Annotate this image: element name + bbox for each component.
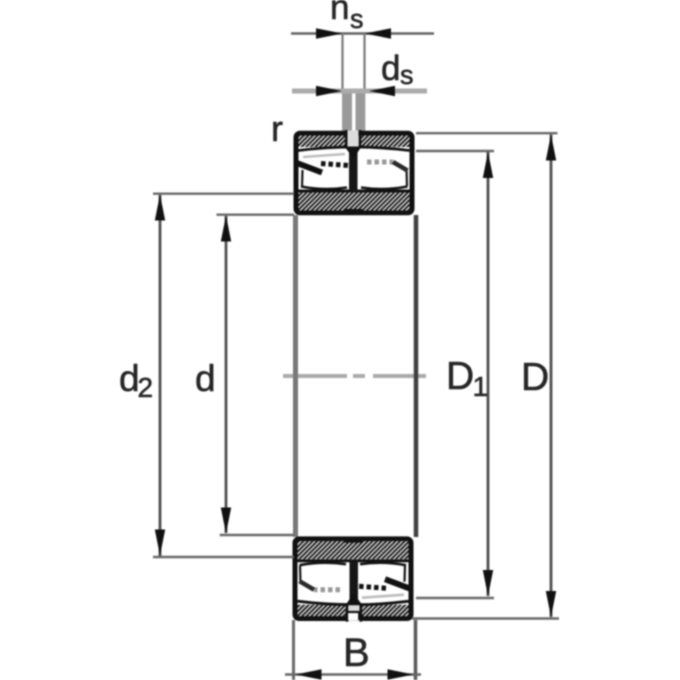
svg-text:d: d: [119, 358, 140, 399]
svg-text:d: d: [381, 49, 400, 88]
svg-text:1: 1: [473, 371, 489, 402]
svg-text:s: s: [400, 60, 414, 90]
svg-text:d: d: [195, 358, 216, 399]
svg-text:2: 2: [138, 372, 154, 403]
svg-text:r: r: [271, 108, 283, 149]
svg-text:s: s: [350, 4, 364, 34]
svg-text:n: n: [330, 0, 349, 27]
svg-text:D: D: [521, 356, 549, 399]
svg-text:D: D: [446, 355, 474, 398]
svg-text:B: B: [343, 631, 370, 675]
